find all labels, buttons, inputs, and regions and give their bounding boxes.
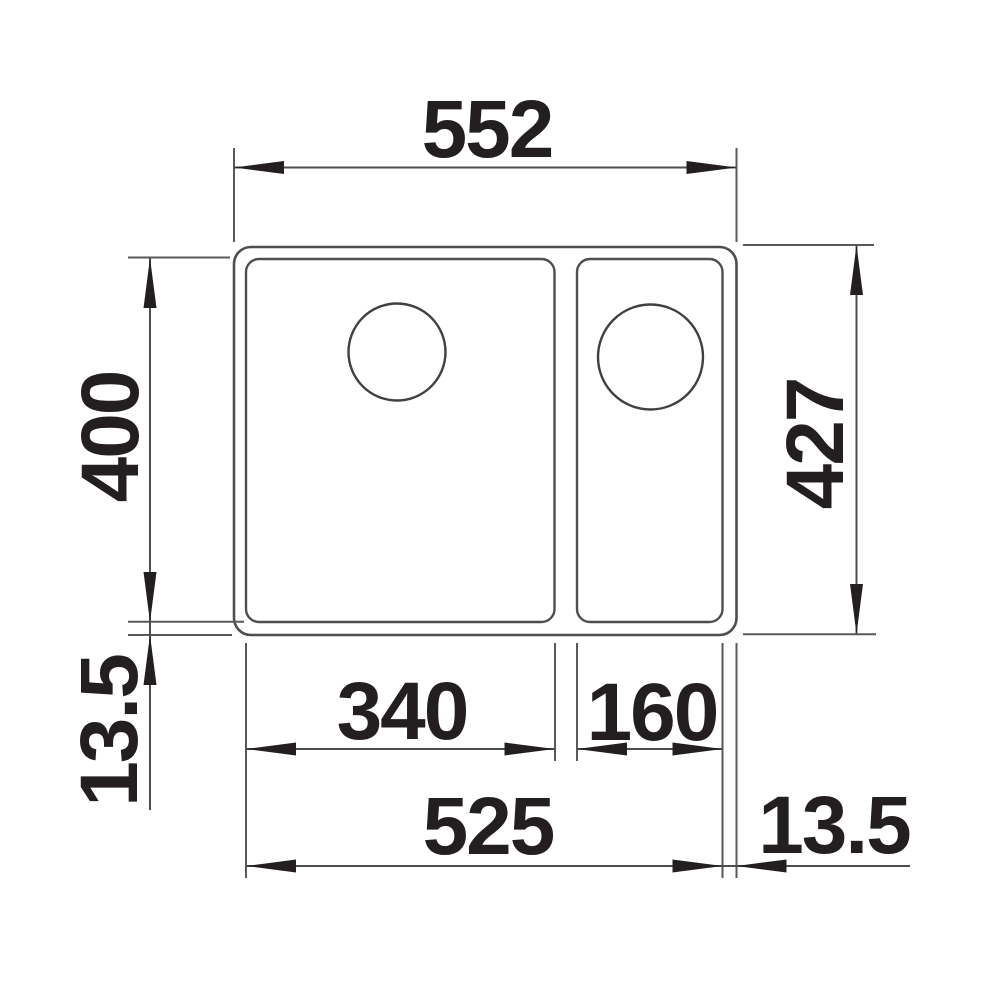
arrowhead-right xyxy=(673,860,723,873)
dim-label-bowl-depth: 400 xyxy=(65,372,156,503)
arrowhead-left xyxy=(234,161,284,174)
arrowhead-top xyxy=(144,258,157,308)
dim-label-left-rim: 13.5 xyxy=(64,655,155,807)
arrowhead-left xyxy=(246,860,296,873)
arrowhead-right xyxy=(505,743,555,756)
dim-rim-right: 13.5 xyxy=(737,780,911,873)
dim-label-main-bowl-width: 340 xyxy=(337,666,468,757)
drawing-canvas: 552 427 400 13.5 340 160 xyxy=(0,0,992,992)
arrowhead-left xyxy=(246,743,296,756)
dim-overall-width: 552 xyxy=(234,84,737,242)
dim-small-bowl-width: 160 xyxy=(577,643,723,878)
dim-label-small-bowl-width: 160 xyxy=(587,667,718,758)
sink-body xyxy=(234,247,737,635)
sink-technical-drawing: 552 427 400 13.5 340 160 xyxy=(0,0,992,992)
dim-label-inner-width: 525 xyxy=(423,781,554,872)
dim-rim-left: 13.5 xyxy=(64,635,157,807)
dim-label-right-rim: 13.5 xyxy=(758,780,910,871)
arrowhead-top xyxy=(850,245,863,295)
small-bowl-drain-hole xyxy=(598,305,703,410)
arrowhead-bottom xyxy=(850,584,863,634)
arrowhead-right xyxy=(687,161,737,174)
arrowhead-bottom xyxy=(144,572,157,622)
dim-label-overall-depth: 427 xyxy=(770,379,861,510)
main-bowl-drain-hole xyxy=(349,304,446,401)
dim-overall-depth: 427 xyxy=(743,245,876,634)
dim-label-overall-width: 552 xyxy=(422,84,553,175)
